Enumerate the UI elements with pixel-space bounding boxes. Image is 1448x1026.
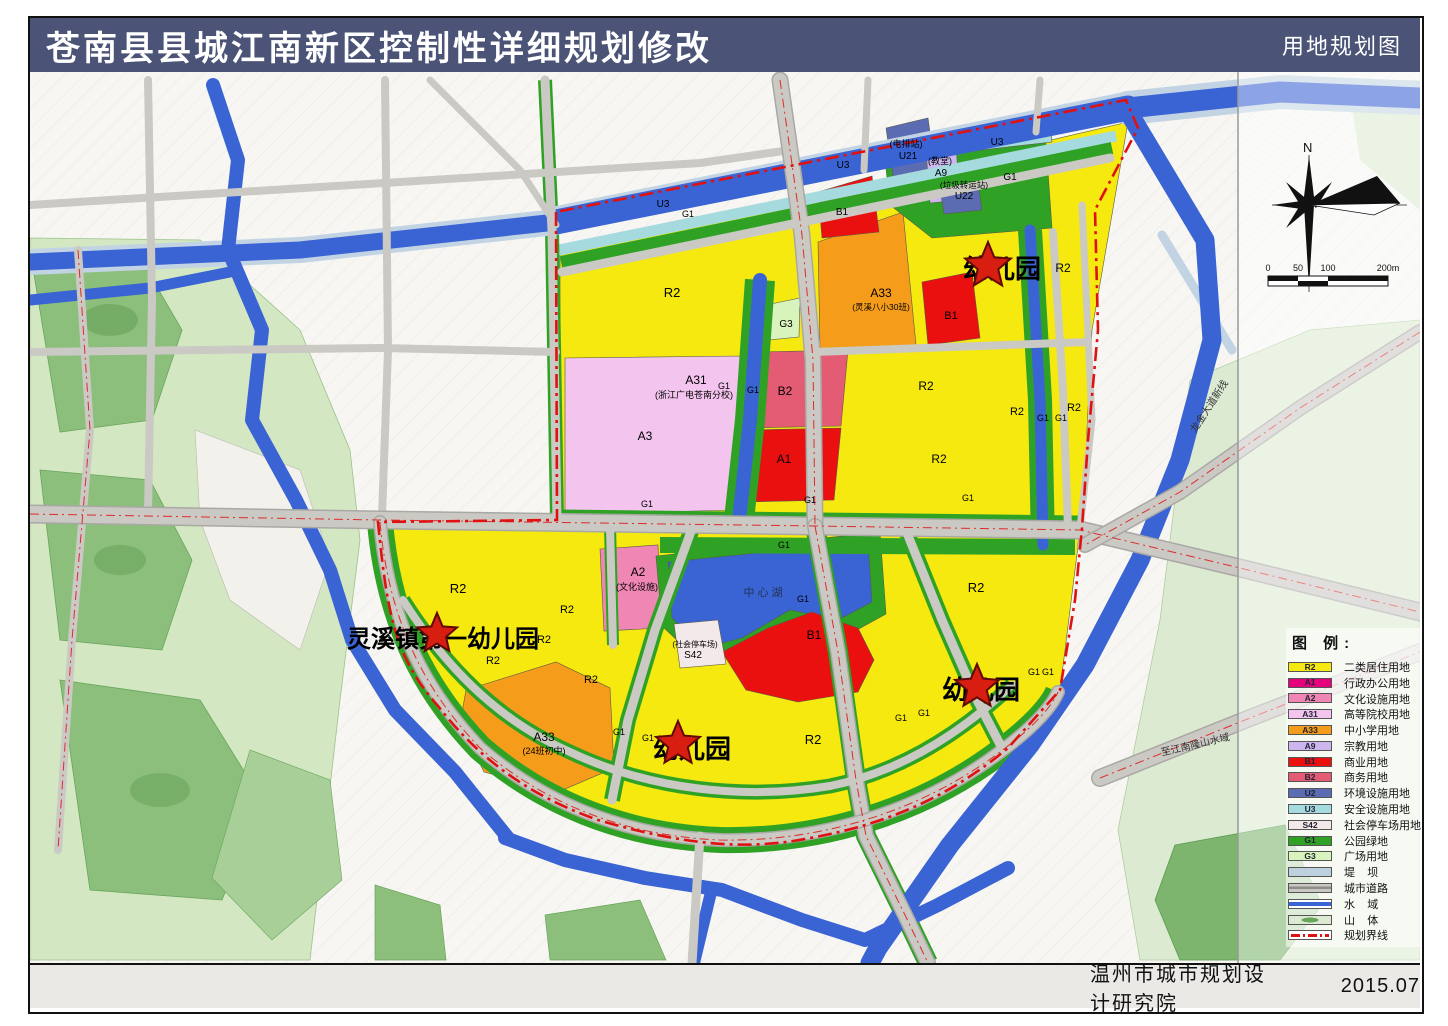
- map-label: (教堂): [928, 155, 952, 166]
- legend-chip: S42: [1288, 820, 1332, 830]
- map-label: (文化设施): [616, 581, 658, 592]
- legend-row: 规划界线: [1288, 928, 1422, 944]
- legend-row: A33中小学用地: [1288, 722, 1422, 738]
- map-label: (垃圾转运站): [940, 180, 988, 190]
- map-label: R2: [1067, 402, 1081, 414]
- legend-label: 中小学用地: [1344, 722, 1399, 738]
- legend-chip: A9: [1288, 741, 1332, 751]
- legend-row: U3安全设施用地: [1288, 801, 1422, 817]
- legend-chip: R2: [1288, 662, 1332, 672]
- map-label: R2: [1055, 261, 1071, 275]
- legend-chip: B2: [1288, 772, 1332, 782]
- legend-label: 广场用地: [1344, 848, 1388, 864]
- map-label: A33: [870, 286, 892, 300]
- scale-tick: 200m: [1377, 263, 1400, 273]
- legend-chip: U3: [1288, 804, 1332, 814]
- map-label: U3: [657, 199, 670, 210]
- map-label: (灵溪八小30班): [852, 302, 910, 312]
- map-label: G1: [1042, 667, 1054, 677]
- legend-row: A31高等院校用地: [1288, 706, 1422, 722]
- legend-row: G1公园绿地: [1288, 833, 1422, 849]
- legend-row: S42社会停车场用地: [1288, 817, 1422, 833]
- map-label: G3: [779, 319, 793, 330]
- map-label: R2: [584, 674, 598, 686]
- map-label: 中 心 湖: [743, 586, 782, 599]
- legend-label: 水 域: [1344, 896, 1378, 912]
- legend-label: 山 体: [1344, 912, 1378, 928]
- map-label: R2: [537, 634, 551, 646]
- map-label: G1: [1055, 413, 1067, 423]
- map-label: G1: [1028, 667, 1040, 677]
- map-label: U22: [955, 191, 974, 202]
- map-label: G1: [718, 381, 730, 391]
- legend-label: 行政办公用地: [1344, 675, 1410, 691]
- legend-chip: U2: [1288, 788, 1332, 798]
- legend-chip: A33: [1288, 725, 1332, 735]
- legend-row: A2文化设施用地: [1288, 691, 1422, 707]
- legend-label: 文化设施用地: [1344, 691, 1410, 707]
- legend-chip: G1: [1288, 836, 1332, 846]
- legend-label: 社会停车场用地: [1344, 817, 1421, 833]
- map-label: R2: [560, 604, 574, 616]
- map-label: A2: [631, 565, 646, 579]
- scale-tick: 50: [1293, 263, 1303, 273]
- map-label: G1: [641, 499, 653, 509]
- legend-chip: B1: [1288, 757, 1332, 767]
- map-label: A1: [777, 452, 792, 466]
- legend-label: 二类居住用地: [1344, 659, 1410, 675]
- legend: 图 例: R2二类居住用地A1行政办公用地A2文化设施用地A31高等院校用地A3…: [1286, 628, 1422, 947]
- legend-row: 山 体: [1288, 912, 1422, 928]
- land-use-map: N 0 50 100 200m U3G1U3(电排站)U21(教堂)A9(垃圾转…: [30, 72, 1420, 963]
- footer-bar: 温州市城市规划设计研究院 2015.07: [30, 963, 1420, 1008]
- map-label: (社会停车场): [672, 639, 718, 649]
- legend-row: 城市道路: [1288, 880, 1422, 896]
- legend-row: A1行政办公用地: [1288, 675, 1422, 691]
- map-label: A31: [685, 373, 707, 387]
- map-label: R2: [486, 655, 500, 667]
- institute-name: 温州市城市规划设计研究院: [1090, 958, 1271, 1016]
- legend-chip: G3: [1288, 851, 1332, 861]
- map-label: G1: [918, 708, 930, 718]
- legend-rows: R2二类居住用地A1行政办公用地A2文化设施用地A31高等院校用地A33中小学用…: [1288, 659, 1422, 943]
- map-label: A3: [638, 429, 653, 443]
- legend-label: 安全设施用地: [1344, 801, 1410, 817]
- legend-row: G3广场用地: [1288, 849, 1422, 865]
- map-label: B1: [944, 310, 957, 322]
- legend-chip: A2: [1288, 693, 1332, 703]
- map-label: B2: [778, 384, 793, 398]
- legend-row: U2环境设施用地: [1288, 785, 1422, 801]
- map-label: R2: [931, 452, 947, 466]
- legend-label: 商业用地: [1344, 754, 1388, 770]
- scale-tick: 0: [1265, 263, 1270, 273]
- map-label: R2: [918, 379, 934, 393]
- legend-chip: [1288, 930, 1332, 940]
- legend-chip: [1288, 899, 1332, 909]
- legend-row: 水 域: [1288, 896, 1422, 912]
- map-label: U3: [991, 137, 1004, 148]
- map-label: G1: [962, 493, 974, 503]
- legend-label: 环境设施用地: [1344, 785, 1410, 801]
- legend-chip: [1288, 915, 1332, 925]
- legend-label: 高等院校用地: [1344, 706, 1410, 722]
- map-label: R2: [1010, 406, 1024, 418]
- map-label: B1: [807, 628, 822, 642]
- compass-north-label: N: [1303, 140, 1312, 155]
- legend-row: R2二类居住用地: [1288, 659, 1422, 675]
- legend-row: B1商业用地: [1288, 754, 1422, 770]
- map-label: R2: [805, 732, 822, 747]
- map-label: U21: [899, 151, 918, 162]
- legend-chip: [1288, 883, 1332, 893]
- map-label: B1: [836, 207, 849, 218]
- map-label: A33: [533, 730, 555, 744]
- legend-label: 公园绿地: [1344, 833, 1388, 849]
- map-label: R2: [664, 285, 681, 300]
- map-label: G1: [778, 540, 790, 550]
- legend-chip: A1: [1288, 678, 1332, 688]
- map-type-label: 用地规划图: [1282, 29, 1402, 61]
- map-label: R2: [450, 581, 467, 596]
- scale-tick: 100: [1320, 263, 1335, 273]
- map-label: (24班初中): [522, 745, 565, 756]
- map-label: G1: [804, 495, 816, 505]
- map-label: G1: [747, 385, 759, 395]
- legend-title: 图 例:: [1292, 632, 1422, 653]
- legend-chip: A31: [1288, 709, 1332, 719]
- map-label: R2: [968, 580, 985, 595]
- legend-label: 商务用地: [1344, 769, 1388, 785]
- map-label: (电排站): [890, 138, 923, 149]
- map-label: G1: [895, 713, 907, 723]
- legend-label: 规划界线: [1344, 927, 1388, 943]
- map-label: G1: [1003, 172, 1017, 183]
- map-date: 2015.07: [1341, 975, 1420, 998]
- map-label: G1: [682, 209, 694, 219]
- legend-label: 宗教用地: [1344, 738, 1388, 754]
- legend-label: 堤 坝: [1344, 864, 1378, 880]
- legend-row: B2商务用地: [1288, 770, 1422, 786]
- map-svg: N 0 50 100 200m U3G1U3(电排站)U21(教堂)A9(垃圾转…: [30, 72, 1420, 963]
- legend-row: 堤 坝: [1288, 864, 1422, 880]
- map-label: S42: [684, 650, 702, 661]
- legend-row: A9宗教用地: [1288, 738, 1422, 754]
- map-label: A9: [935, 168, 948, 179]
- map-label: G1: [1037, 413, 1049, 423]
- map-label: G1: [613, 727, 625, 737]
- legend-chip: [1288, 867, 1332, 877]
- legend-label: 城市道路: [1344, 880, 1388, 896]
- map-label: U3: [837, 160, 850, 171]
- page-title: 苍南县县城江南新区控制性详细规划修改: [46, 21, 712, 70]
- map-label: G1: [797, 594, 809, 604]
- title-bar: 苍南县县城江南新区控制性详细规划修改 用地规划图: [30, 18, 1420, 72]
